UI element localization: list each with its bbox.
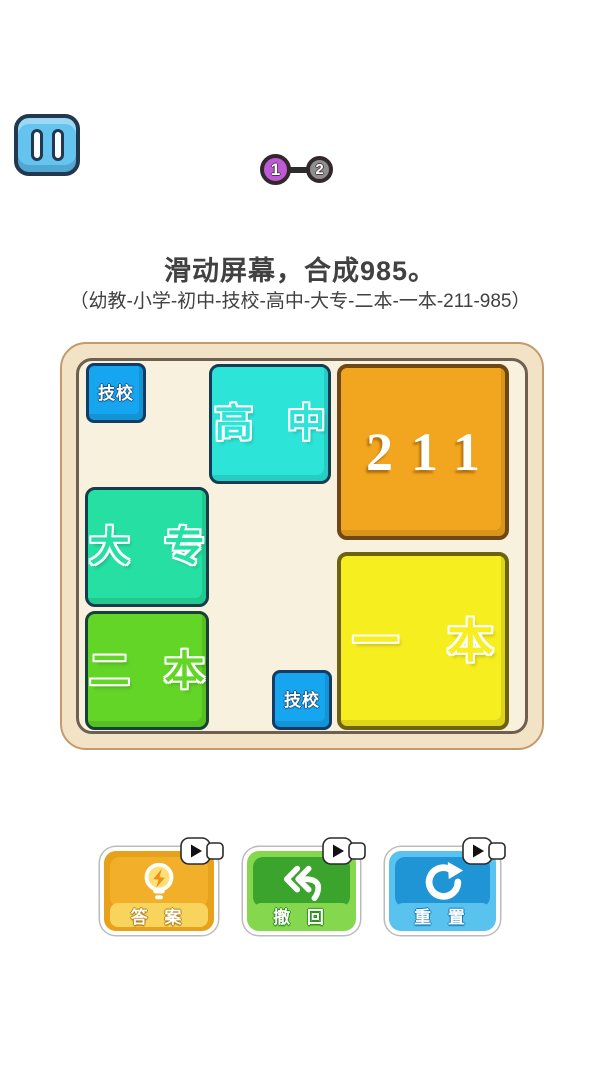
reset-button-label: 重 置 [395,903,490,927]
lightbulb-icon [136,859,182,905]
block-211[interactable]: 211 [337,364,509,540]
merge-sequence: （幼教-小学-初中-技校-高中-大专-二本-一本-211-985） [0,286,600,313]
undo-button[interactable]: 撤 回 [243,847,360,935]
puzzle-board: 技校 高 中 211 大 专 二 本 一 本 技校 [60,342,544,750]
ad-video-icon [179,835,225,867]
pause-icon [31,129,43,161]
block-label: 二 本 [77,651,216,691]
block-label: 高 中 [203,405,338,443]
ad-video-icon [321,835,367,867]
undo-icon [279,862,325,902]
refresh-icon [420,859,466,905]
progress-step-next: 2 [306,156,333,183]
block-label: 一 本 [335,618,512,664]
answer-button-label: 答 案 [110,903,208,927]
undo-button-label: 撤 回 [253,903,350,927]
block-label: 大 专 [77,527,216,567]
pause-button[interactable] [14,114,80,176]
block-label: 技校 [284,692,320,709]
block-jixiao-1[interactable]: 技校 [86,363,146,423]
progress-step-current: 1 [260,154,291,185]
block-yiben[interactable]: 一 本 [337,552,509,730]
block-jixiao-2[interactable]: 技校 [272,670,332,730]
block-gaozhong[interactable]: 高 中 [209,364,331,484]
ad-video-icon [461,835,507,867]
block-dazhuan[interactable]: 大 专 [85,487,209,607]
goal-title: 滑动屏幕，合成985。 [0,249,600,288]
answer-button[interactable]: 答 案 [100,847,218,935]
pause-icon [52,129,64,161]
block-label: 211 [348,425,498,479]
block-label: 技校 [98,385,134,402]
block-erben[interactable]: 二 本 [85,611,209,730]
game-screen: 1 2 滑动屏幕，合成985。 （幼教-小学-初中-技校-高中-大专-二本-一本… [0,0,600,1066]
reset-button[interactable]: 重 置 [385,847,500,935]
